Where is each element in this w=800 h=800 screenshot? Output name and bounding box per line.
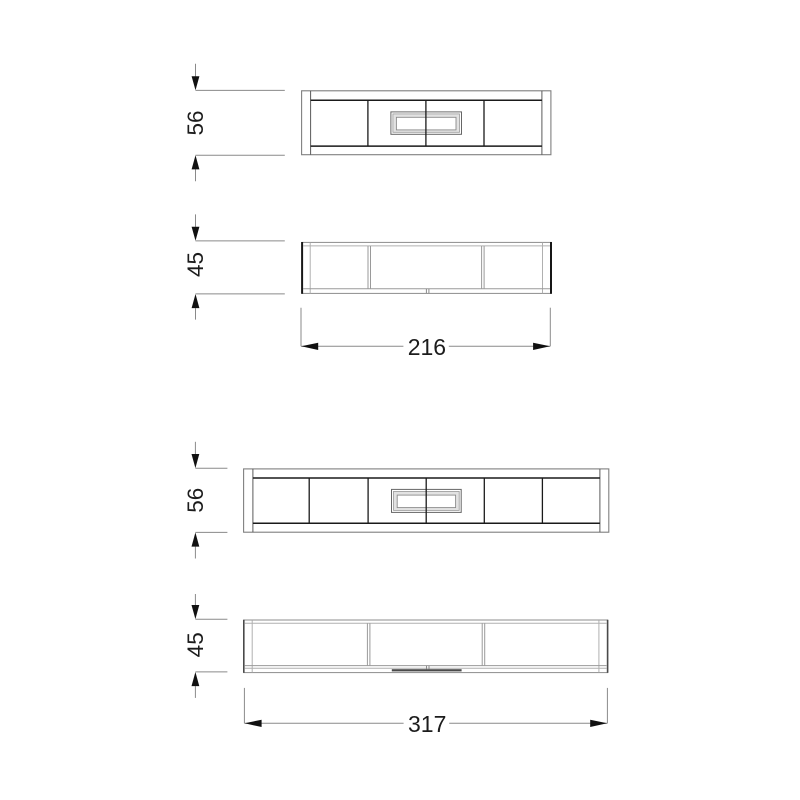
- svg-text:216: 216: [408, 334, 446, 360]
- svg-text:56: 56: [183, 110, 208, 135]
- svg-text:45: 45: [183, 632, 208, 657]
- svg-text:45: 45: [183, 252, 208, 277]
- svg-text:56: 56: [183, 488, 208, 513]
- svg-text:317: 317: [408, 711, 446, 737]
